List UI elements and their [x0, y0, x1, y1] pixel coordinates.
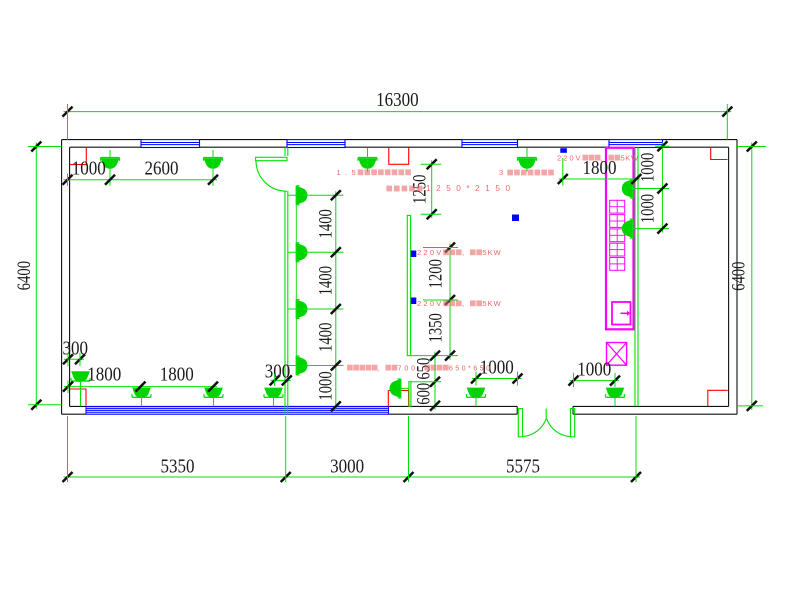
svg-text:1400: 1400 [316, 323, 337, 352]
svg-text:1000: 1000 [316, 371, 337, 400]
svg-text:1000: 1000 [638, 194, 659, 223]
svg-text:1000: 1000 [480, 357, 514, 379]
svg-text:220V: 220V [417, 248, 442, 257]
svg-text:1000: 1000 [72, 158, 106, 180]
svg-text:5350: 5350 [161, 455, 195, 477]
svg-text:5KW: 5KW [482, 299, 501, 308]
svg-text:,: , [417, 363, 419, 372]
svg-text:300: 300 [62, 338, 88, 360]
svg-text:16300: 16300 [376, 89, 419, 111]
svg-text:6400: 6400 [14, 261, 35, 290]
svg-text:1800: 1800 [87, 364, 121, 386]
svg-text:300: 300 [265, 361, 291, 383]
svg-text:1400: 1400 [316, 209, 337, 238]
svg-text:,: , [601, 153, 603, 162]
svg-text:,: , [462, 299, 464, 308]
svg-text:3: 3 [499, 168, 503, 177]
svg-text:700: 700 [397, 363, 415, 372]
svg-text:1200: 1200 [426, 259, 447, 288]
svg-text:600: 600 [414, 383, 435, 405]
svg-text:220V: 220V [417, 299, 442, 308]
svg-text:5575: 5575 [506, 455, 540, 477]
svg-text:,: , [462, 248, 464, 257]
svg-text:1000: 1000 [638, 153, 659, 182]
svg-text:5KW: 5KW [482, 248, 501, 257]
svg-text:1.5: 1.5 [336, 168, 355, 177]
svg-text:1350: 1350 [426, 313, 447, 342]
svg-text:1000: 1000 [577, 359, 611, 381]
svg-text:2600: 2600 [145, 158, 179, 180]
svg-text:,: , [378, 363, 380, 372]
svg-text:1250*2150: 1250*2150 [426, 184, 510, 193]
svg-text:220V: 220V [557, 153, 581, 162]
svg-text:5KW: 5KW [620, 153, 638, 162]
svg-text:6400: 6400 [728, 262, 749, 291]
svg-text:3000: 3000 [330, 455, 364, 477]
svg-text:1800: 1800 [160, 364, 194, 386]
svg-text:1400: 1400 [316, 266, 337, 295]
